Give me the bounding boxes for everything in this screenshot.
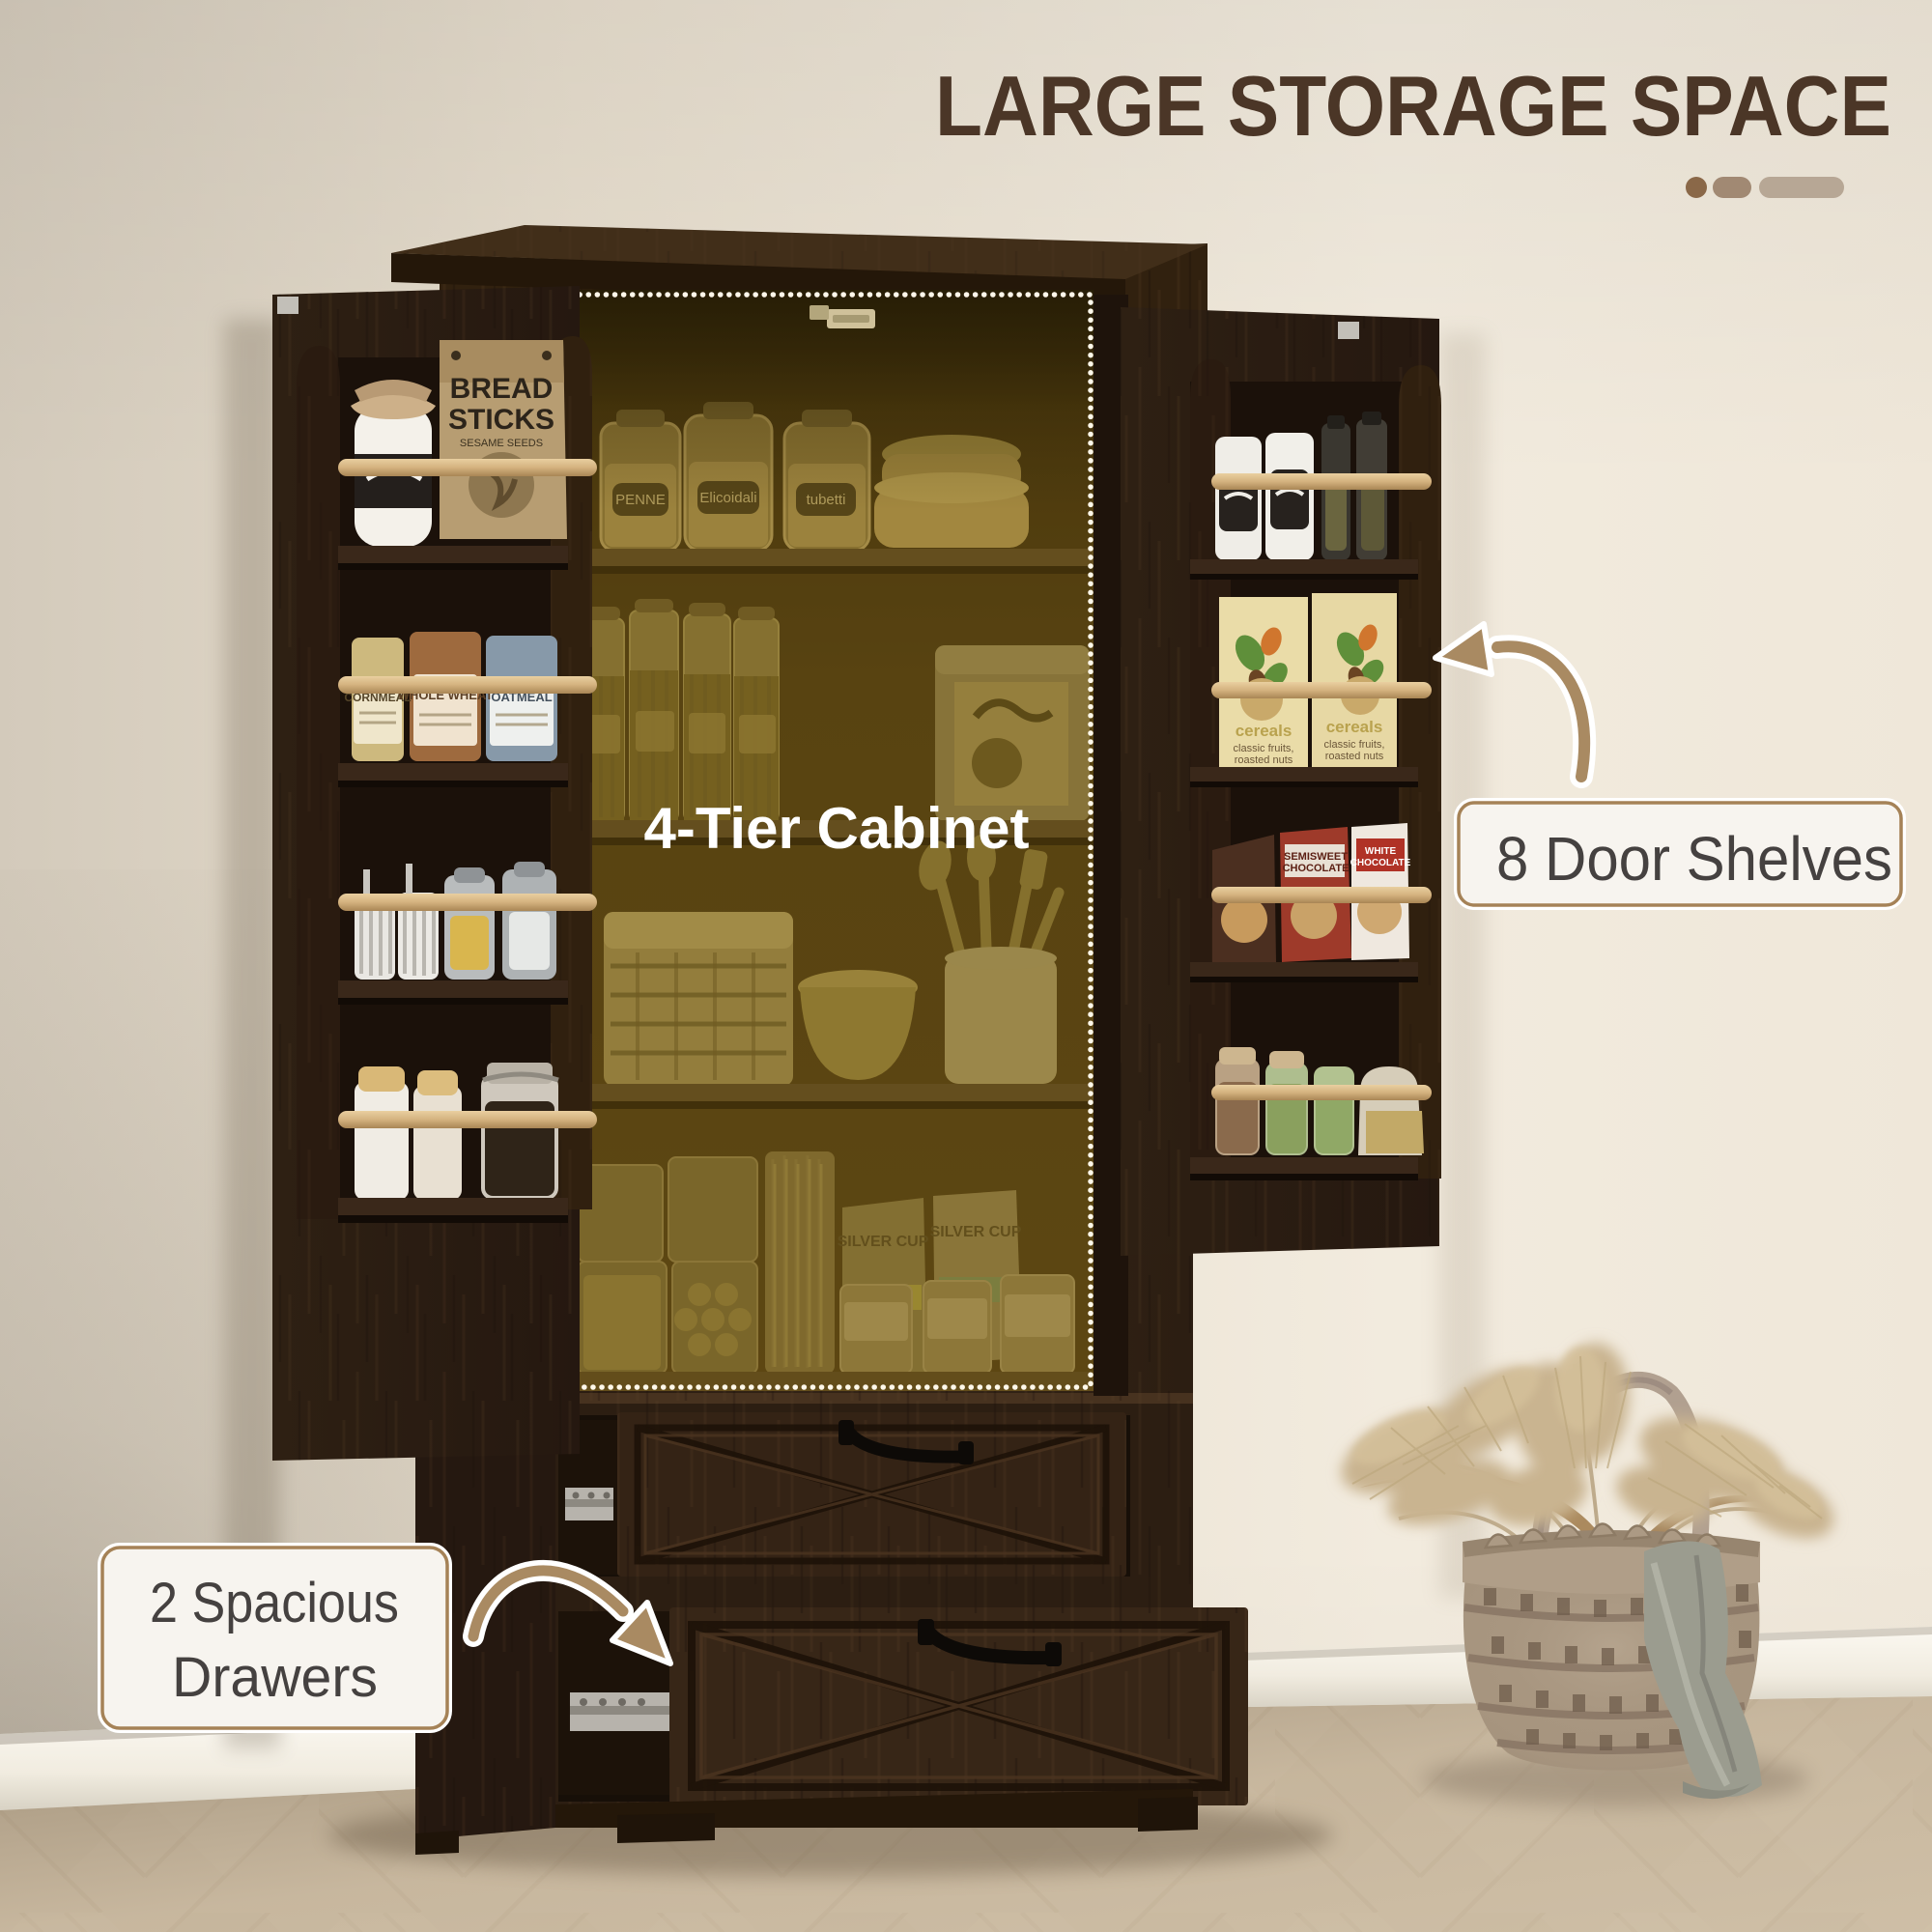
svg-text:STICKS: STICKS bbox=[448, 404, 554, 436]
svg-text:SEMISWEET: SEMISWEET bbox=[1284, 851, 1348, 863]
svg-text:Drawers: Drawers bbox=[172, 1646, 378, 1709]
svg-text:cereals: cereals bbox=[1236, 722, 1293, 740]
svg-text:4-Tier Cabinet: 4-Tier Cabinet bbox=[644, 796, 1030, 861]
svg-text:SESAME SEEDS: SESAME SEEDS bbox=[460, 438, 543, 449]
svg-text:CHOCOLATE: CHOCOLATE bbox=[1350, 858, 1411, 868]
svg-text:cereals: cereals bbox=[1326, 718, 1383, 736]
svg-text:WHITE: WHITE bbox=[1365, 846, 1397, 857]
svg-text:roasted nuts: roasted nuts bbox=[1235, 754, 1293, 766]
svg-text:BREAD: BREAD bbox=[450, 373, 554, 405]
svg-text:CHOCOLATE: CHOCOLATE bbox=[1283, 863, 1350, 874]
svg-text:8 Door Shelves: 8 Door Shelves bbox=[1496, 824, 1892, 894]
svg-text:roasted nuts: roasted nuts bbox=[1325, 751, 1384, 762]
svg-text:classic fruits,: classic fruits, bbox=[1324, 739, 1385, 751]
svg-text:2 Spacious: 2 Spacious bbox=[150, 1572, 399, 1634]
svg-text:LARGE STORAGE SPACE: LARGE STORAGE SPACE bbox=[935, 58, 1891, 154]
svg-text:classic fruits,: classic fruits, bbox=[1234, 743, 1294, 754]
